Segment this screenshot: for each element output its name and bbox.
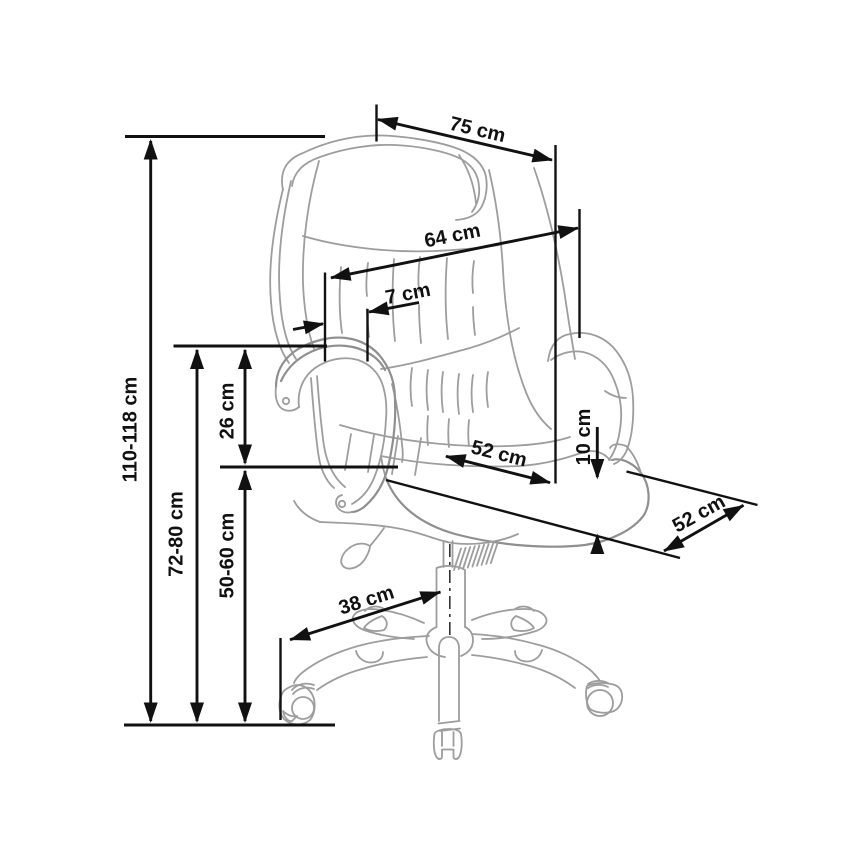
svg-text:38 cm: 38 cm [336, 581, 397, 619]
svg-text:110-118 cm: 110-118 cm [120, 377, 142, 483]
svg-text:50-60 cm: 50-60 cm [217, 513, 239, 599]
svg-text:10 cm: 10 cm [573, 409, 595, 466]
svg-text:7 cm: 7 cm [384, 279, 433, 309]
svg-text:72-80 cm: 72-80 cm [166, 491, 188, 577]
svg-text:26 cm: 26 cm [217, 383, 239, 440]
